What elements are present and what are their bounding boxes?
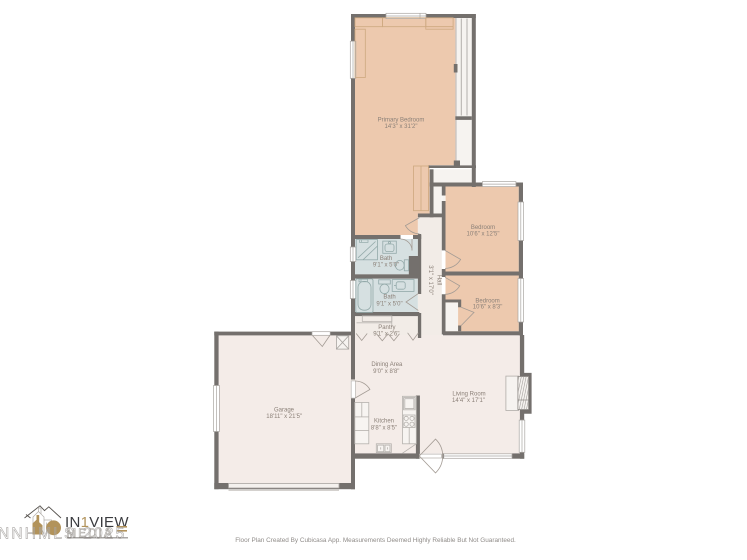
svg-text:9'1" x 2'6": 9'1" x 2'6" — [373, 331, 399, 337]
svg-text:Dining Area: Dining Area — [371, 362, 403, 368]
svg-text:8'8" x 8'5": 8'8" x 8'5" — [371, 426, 397, 432]
svg-text:18'11" x 21'5": 18'11" x 21'5" — [266, 414, 302, 420]
svg-text:9'1" x 5'0": 9'1" x 5'0" — [376, 301, 402, 307]
svg-text:10'6" x 12'5": 10'6" x 12'5" — [467, 232, 500, 238]
svg-text:Kitchen: Kitchen — [374, 419, 394, 425]
svg-text:Garage: Garage — [274, 407, 295, 413]
svg-text:Living Room: Living Room — [452, 391, 485, 397]
svg-text:NNHMLS 2025: NNHMLS 2025 — [0, 526, 126, 543]
svg-text:Bedroom: Bedroom — [471, 225, 495, 231]
svg-text:Primary Bedroom: Primary Bedroom — [378, 118, 425, 124]
svg-text:Bedroom: Bedroom — [475, 298, 499, 304]
svg-text:Pantry: Pantry — [378, 325, 395, 331]
svg-text:Floor Plan Created By Cubicasa: Floor Plan Created By Cubicasa App. Meas… — [235, 537, 516, 544]
svg-text:10'6" x 8'3": 10'6" x 8'3" — [473, 305, 503, 311]
svg-text:9'0" x 8'8": 9'0" x 8'8" — [373, 369, 399, 375]
svg-text:Bath: Bath — [380, 256, 392, 262]
svg-text:Bath: Bath — [383, 295, 395, 301]
svg-text:9'1" x 5'0": 9'1" x 5'0" — [373, 263, 399, 269]
svg-text:14'4" x 17'1": 14'4" x 17'1" — [452, 398, 485, 404]
svg-text:14'3" x 31'2": 14'3" x 31'2" — [385, 124, 418, 130]
